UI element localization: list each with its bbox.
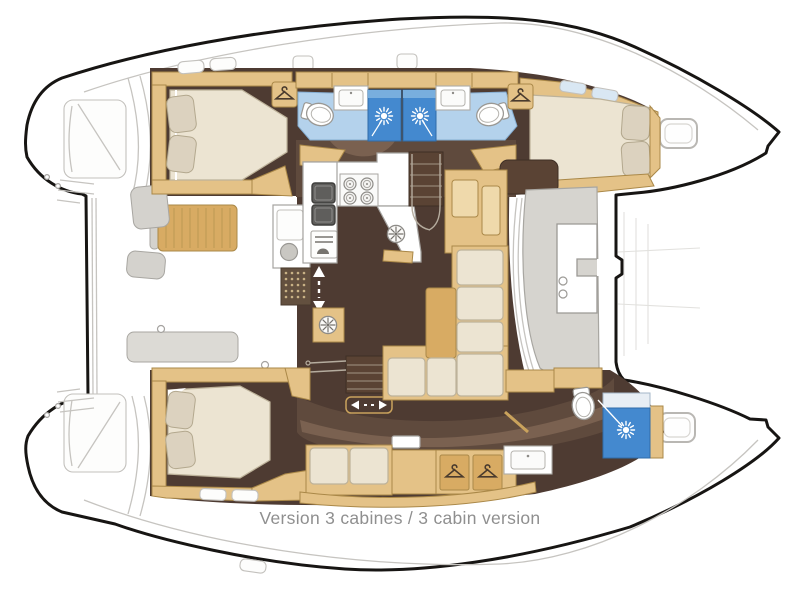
pillow — [166, 94, 197, 133]
pillow — [166, 135, 197, 174]
boat-floor-plan: Version 3 cabines / 3 cabin version — [0, 0, 800, 600]
corridor-sofa — [306, 445, 392, 495]
bathroom-aft — [298, 86, 401, 141]
hanging-locker — [508, 84, 533, 109]
bathroom-sink — [436, 86, 470, 110]
bathroom-forward — [403, 86, 517, 141]
caption: Version 3 cabines / 3 cabin version — [260, 508, 541, 528]
cup-holder — [559, 277, 567, 285]
cockpit-seat-lower — [126, 250, 166, 279]
shower-stall — [598, 393, 650, 458]
oven-icon — [311, 231, 337, 258]
owner-sink — [504, 446, 552, 474]
bed-headboard — [650, 106, 660, 178]
floor-plan-svg: Version 3 cabines / 3 cabin version — [0, 0, 800, 600]
trampoline-lines — [618, 212, 700, 356]
port-aft-cabin — [152, 57, 297, 196]
vent-hatch-icon — [319, 316, 336, 333]
vent-cabinet — [313, 308, 344, 342]
stove — [340, 174, 378, 206]
salon-table — [426, 288, 456, 358]
cup-holder — [559, 290, 567, 298]
shower-stall — [403, 90, 436, 141]
cabinet — [392, 450, 436, 494]
vent-hatch-icon — [387, 225, 404, 242]
bathroom-sink — [334, 86, 368, 110]
cockpit-step-mat — [281, 268, 311, 305]
bow-hatch-starboard — [659, 413, 695, 442]
pillow — [621, 141, 651, 177]
pillow — [165, 430, 196, 469]
deck-fitting — [158, 326, 165, 333]
cockpit-table — [127, 332, 238, 362]
deck-fitting — [262, 362, 269, 369]
pillow — [165, 391, 196, 430]
chart-table — [445, 170, 507, 253]
shower-stall — [368, 90, 401, 141]
pillow — [621, 105, 651, 141]
bow-hatch-port — [660, 119, 697, 148]
hanging-locker — [272, 82, 297, 107]
